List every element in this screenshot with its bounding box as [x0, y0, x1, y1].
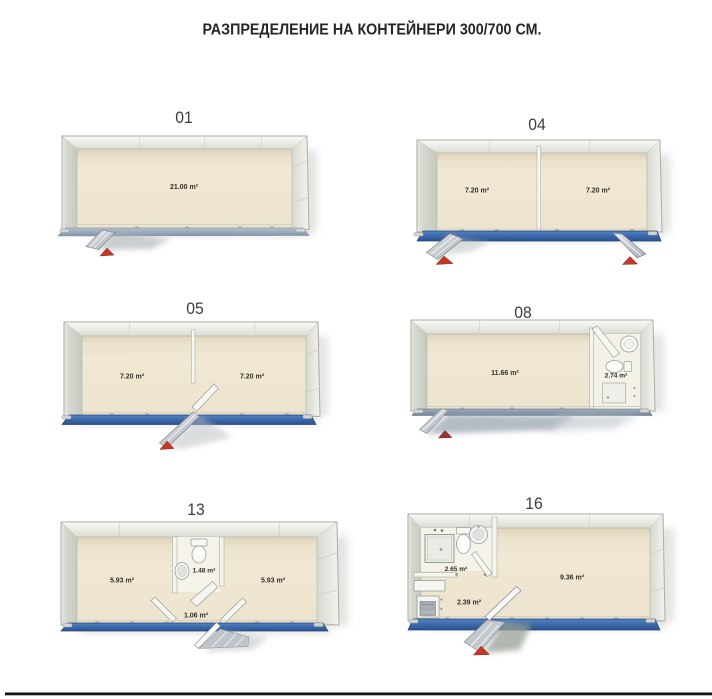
svg-text:1.06 m²: 1.06 m²	[184, 613, 209, 620]
svg-text:08: 08	[514, 304, 532, 322]
svg-text:11.66 m²: 11.66 m²	[491, 370, 519, 377]
svg-text:05: 05	[186, 300, 204, 318]
svg-text:7.20 m²: 7.20 m²	[465, 188, 490, 195]
svg-text:16: 16	[525, 495, 543, 513]
svg-text:04: 04	[528, 116, 546, 134]
svg-text:2.74 m²: 2.74 m²	[605, 373, 629, 380]
svg-text:2.65 m²: 2.65 m²	[445, 566, 469, 573]
svg-text:9.36 m²: 9.36 m²	[560, 575, 585, 582]
svg-text:5.93 m²: 5.93 m²	[110, 578, 135, 585]
svg-text:21.00 m²: 21.00 m²	[170, 184, 199, 191]
svg-text:РАЗПРЕДЕЛЕНИЕ НА КОНТЕЙНЕРИ 30: РАЗПРЕДЕЛЕНИЕ НА КОНТЕЙНЕРИ 300/700 СМ.	[203, 20, 542, 39]
svg-text:2.39 m²: 2.39 m²	[457, 600, 482, 607]
svg-text:13: 13	[187, 501, 205, 519]
svg-text:01: 01	[175, 109, 193, 127]
svg-text:7.20 m²: 7.20 m²	[120, 374, 145, 381]
svg-text:5.93 m²: 5.93 m²	[261, 578, 286, 585]
svg-text:7.20 m²: 7.20 m²	[240, 374, 265, 381]
svg-text:7.20 m²: 7.20 m²	[586, 188, 611, 195]
svg-text:1.48 m²: 1.48 m²	[193, 568, 217, 575]
